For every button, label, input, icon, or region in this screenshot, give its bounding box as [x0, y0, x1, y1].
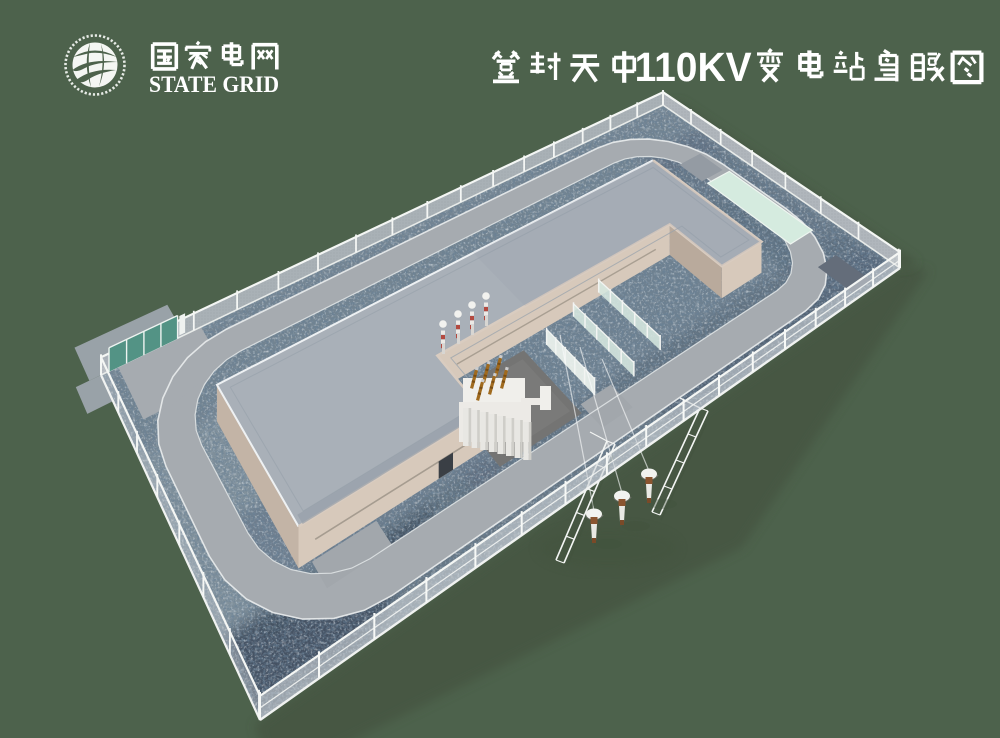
svg-text:STATE GRID: STATE GRID: [149, 72, 279, 97]
svg-text:110KV: 110KV: [635, 44, 753, 90]
